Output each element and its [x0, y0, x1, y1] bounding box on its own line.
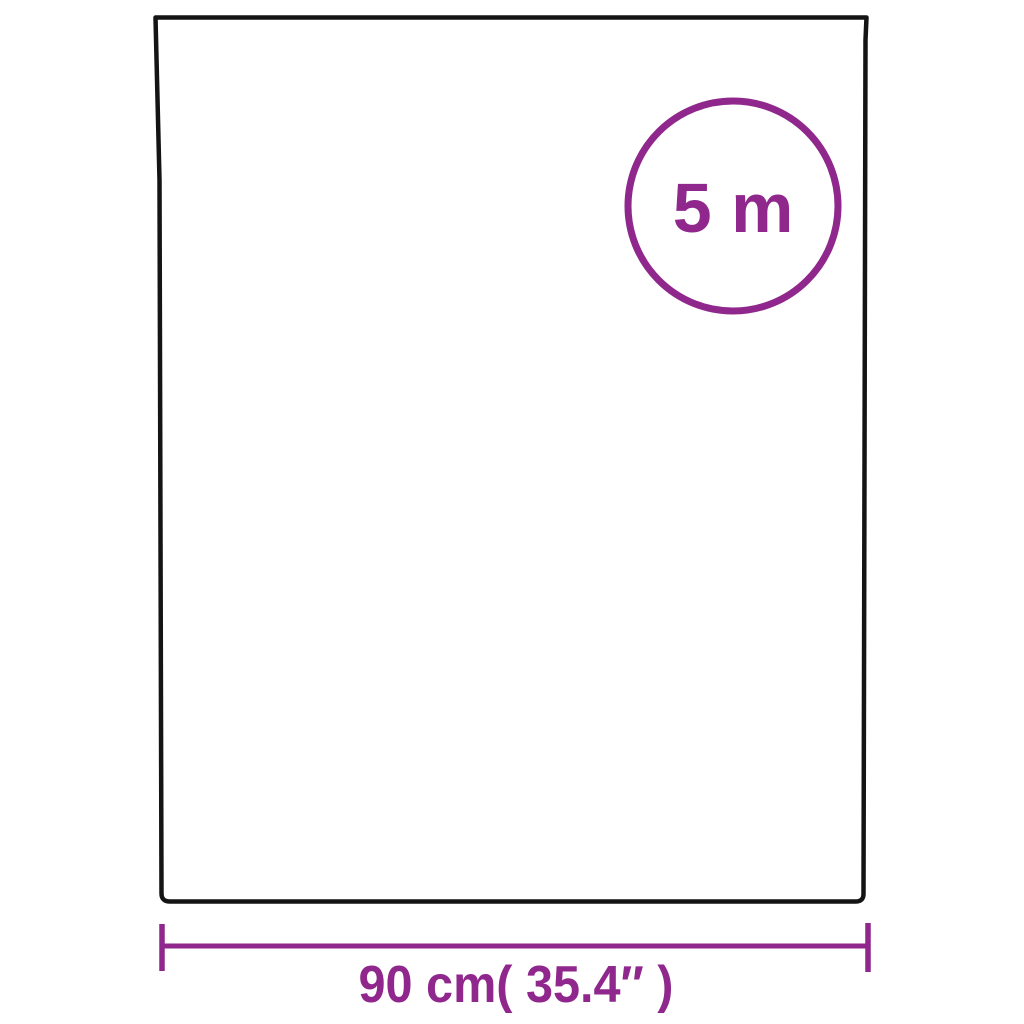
diagram-canvas: 5 m 90 cm( 35.4″ ) — [0, 0, 1024, 1024]
product-dimension-diagram: 5 m 90 cm( 35.4″ ) — [0, 0, 1024, 1024]
roll-length-badge-label: 5 m — [673, 169, 794, 247]
width-dimension: 90 cm( 35.4″ ) — [162, 923, 868, 1014]
width-dimension-label: 90 cm( 35.4″ ) — [359, 956, 674, 1014]
